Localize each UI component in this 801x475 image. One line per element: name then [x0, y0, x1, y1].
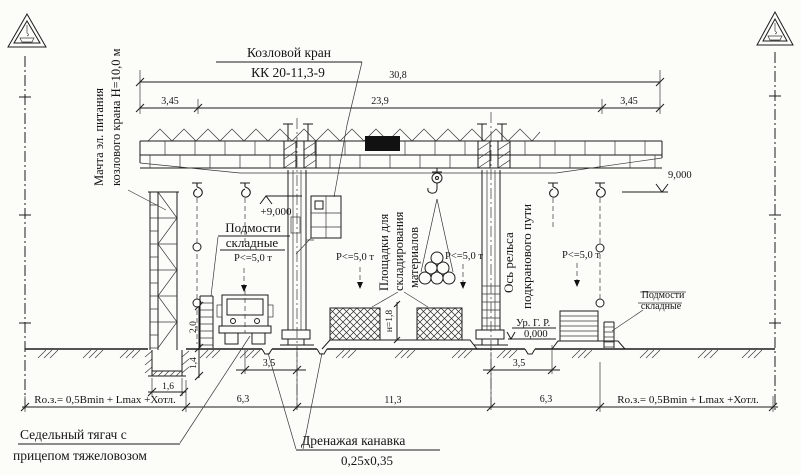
- leader-line: [128, 190, 166, 210]
- truck-label-line1: Седельный тягач с: [20, 427, 127, 442]
- dim-track-right: 3,5: [513, 358, 526, 369]
- hook-curl: [428, 183, 437, 193]
- girder-truss-zigzag: [148, 129, 540, 141]
- top-dimensions: 30,8 3,45 23,9 3,45: [136, 70, 664, 114]
- dimension-ticks: [136, 78, 664, 112]
- danger-zone-formula-right: Rо.з.= 0,5Bmin + Lmax +Хотл.: [617, 394, 759, 406]
- load-limit-label: Р<=5,0 т: [234, 253, 272, 264]
- stack-boards: [560, 316, 598, 336]
- danger-zone-boundary-left: [19, 56, 31, 410]
- hoist-cable: [432, 168, 442, 173]
- dim-cantilever-left: 3,45: [161, 96, 179, 107]
- scaffold-label-line1: Подмости: [225, 220, 281, 235]
- truck-mirror-left: [217, 305, 222, 317]
- platforms-label-line1: Площадки для: [377, 213, 391, 291]
- leg-cabinet: [291, 217, 300, 233]
- drainage-label: Дренажая канавка: [301, 433, 405, 448]
- crane-cab: [291, 196, 341, 254]
- dim-zone-right: 6,3: [540, 394, 553, 405]
- mast-rails: [148, 192, 179, 350]
- crane-hook-and-load: [419, 168, 455, 284]
- leg-bogie: [282, 330, 310, 339]
- elevation-mark-icon: [622, 184, 668, 192]
- rail-head-level-value: 0,000: [524, 329, 548, 340]
- leg-bogie: [476, 330, 504, 339]
- ladder-rungs: [200, 303, 213, 345]
- elevation-mark-icon: [260, 196, 302, 204]
- rail-axis-label-line2: подкранового пути: [519, 204, 534, 309]
- pulley-axle: [436, 177, 439, 180]
- truck-wheel: [225, 333, 238, 344]
- platforms-label-line2: складирования: [392, 211, 406, 291]
- folding-scaffold-left: Подмости складные: [200, 220, 290, 348]
- rail-block: [288, 339, 304, 345]
- mast-label-line2: козлового крана Н=10,0 м: [109, 48, 123, 186]
- crane-girder: [140, 124, 662, 173]
- scaffold-ladder: [604, 322, 614, 348]
- cab-brace: [296, 238, 314, 254]
- gantry-crane-drawing: 30,8 3,45 23,9 3,45 Козловой кран КК 20-…: [0, 0, 801, 475]
- dim-pile-height: н=1,8: [385, 310, 395, 333]
- material-pile-right: [417, 308, 462, 340]
- girder-chords: [140, 141, 662, 168]
- suspended-load-icon: [20, 25, 34, 42]
- drawing-svg: 30,8 3,45 23,9 3,45 Козловой кран КК 20-…: [0, 0, 801, 475]
- hook-pulley: [432, 173, 442, 183]
- storage-piles: н=1,8 Площадки для складирования материа…: [330, 211, 462, 343]
- power-mast: Мачта эл. питания козлового крана Н=10,0…: [92, 48, 179, 350]
- rail-axis-callout: Ось рельса подкранового пути: [501, 204, 534, 309]
- dimension-lines: [140, 82, 660, 108]
- load-limit-label: Р<=5,0 т: [336, 252, 374, 263]
- hook-icon: [548, 183, 558, 197]
- crane-name-label: Козловой кран: [247, 45, 331, 60]
- crane-title-callout: Козловой кран КК 20-11,3-9: [216, 45, 362, 197]
- crane-trolley: [365, 136, 400, 151]
- leader-line: [211, 237, 218, 296]
- mast-label-line1: Мачта эл. питания: [92, 88, 106, 186]
- danger-zone-boundary-right: [769, 52, 781, 410]
- dim-base-height: 2,0: [189, 321, 199, 333]
- truck-wheel: [252, 333, 265, 344]
- girder-bottom-taper: [140, 158, 662, 173]
- leader-lines: [372, 292, 428, 307]
- scaffold-label-line2: складные: [226, 235, 279, 250]
- dim-zone-center: 11,3: [384, 395, 401, 406]
- dim-span: 23,9: [371, 96, 389, 107]
- crane-model-label: КК 20-11,3-9: [251, 65, 325, 80]
- crane-warning-sign-left: [8, 14, 46, 47]
- suspended-load-icon: [768, 23, 782, 40]
- material-pile-left: [330, 308, 380, 340]
- pipe: [431, 252, 443, 264]
- truck: [217, 290, 273, 344]
- dim-zone-left: 6,3: [237, 394, 250, 405]
- crane-warning-sign-right: [757, 12, 793, 45]
- rail-axis-label-line1: Ось рельса: [501, 232, 516, 293]
- mast-rungs: [150, 205, 158, 348]
- leader-line: [180, 336, 250, 443]
- hook-icon: [192, 183, 202, 197]
- scaffold-ladder: [200, 296, 213, 348]
- drainage-ditch-notches: [262, 349, 535, 354]
- folding-scaffold-right: Подмости складные: [560, 290, 686, 348]
- rail-block: [482, 339, 498, 345]
- dim-foundation-depth: 1,4: [189, 357, 199, 369]
- ground-hatching: [38, 350, 762, 358]
- headlight: [231, 319, 236, 324]
- hook-icon: [240, 183, 250, 197]
- ground: [25, 340, 775, 358]
- slab-hatching: [152, 371, 181, 376]
- dim-foundation-width: 1,6: [162, 382, 174, 392]
- dim-cantilever-right: 3,45: [620, 96, 638, 107]
- elevation-girder-bottom-right: 9,000: [668, 170, 692, 181]
- cable-insulator: [193, 243, 201, 251]
- headlight: [255, 319, 260, 324]
- dim-total-length: 30,8: [389, 70, 407, 81]
- cable-insulator: [596, 299, 604, 307]
- rail-head-level-label: Ур. Г. Р.: [516, 318, 550, 329]
- drainage-size-label: 0,25х0,35: [341, 453, 393, 468]
- ladder-rungs: [604, 327, 614, 347]
- mast-lattice: [158, 192, 177, 348]
- hook-icon: [595, 183, 605, 197]
- cab-window: [315, 201, 323, 209]
- dim-track-left: 3,5: [263, 358, 276, 369]
- truck-mirror-right: [268, 305, 273, 317]
- truck-label-line2: прицепом тяжеловозом: [13, 448, 147, 463]
- elevation-girder-bottom: +9,000: [261, 206, 292, 218]
- danger-zone-formula-left: Rо.з.= 0,5Bmin + Lmax +Хотл.: [34, 394, 176, 406]
- load-limit-label: Р<=5,0 т: [562, 250, 600, 261]
